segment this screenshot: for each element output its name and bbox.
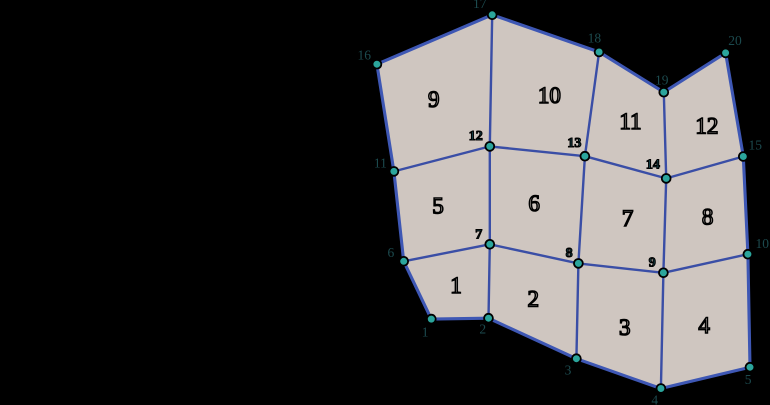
- svg-text:3: 3: [565, 363, 572, 378]
- svg-text:20: 20: [728, 33, 742, 48]
- svg-text:12: 12: [695, 114, 718, 139]
- svg-text:2: 2: [479, 322, 486, 337]
- svg-text:13: 13: [567, 136, 581, 151]
- svg-text:6: 6: [528, 191, 540, 216]
- svg-text:18: 18: [588, 31, 602, 46]
- svg-text:5: 5: [745, 372, 752, 387]
- svg-text:1: 1: [450, 273, 462, 298]
- svg-text:16: 16: [358, 47, 372, 62]
- svg-text:10: 10: [538, 83, 561, 108]
- svg-text:15: 15: [748, 138, 762, 153]
- svg-text:4: 4: [651, 393, 658, 405]
- svg-text:4: 4: [698, 313, 710, 338]
- svg-text:14: 14: [646, 158, 660, 173]
- svg-text:9: 9: [649, 255, 656, 270]
- svg-text:8: 8: [566, 246, 573, 261]
- svg-text:17: 17: [473, 0, 487, 11]
- svg-text:7: 7: [622, 206, 634, 231]
- svg-text:19: 19: [655, 73, 669, 88]
- svg-text:3: 3: [619, 315, 631, 340]
- svg-text:11: 11: [374, 156, 387, 171]
- svg-text:7: 7: [475, 228, 482, 243]
- svg-text:1: 1: [422, 325, 429, 340]
- svg-text:2: 2: [527, 287, 539, 312]
- svg-text:12: 12: [469, 129, 483, 144]
- svg-text:10: 10: [755, 236, 769, 251]
- svg-text:6: 6: [388, 245, 395, 260]
- svg-text:5: 5: [432, 194, 444, 219]
- svg-text:8: 8: [702, 205, 714, 230]
- svg-text:11: 11: [619, 109, 641, 134]
- svg-text:9: 9: [428, 87, 440, 112]
